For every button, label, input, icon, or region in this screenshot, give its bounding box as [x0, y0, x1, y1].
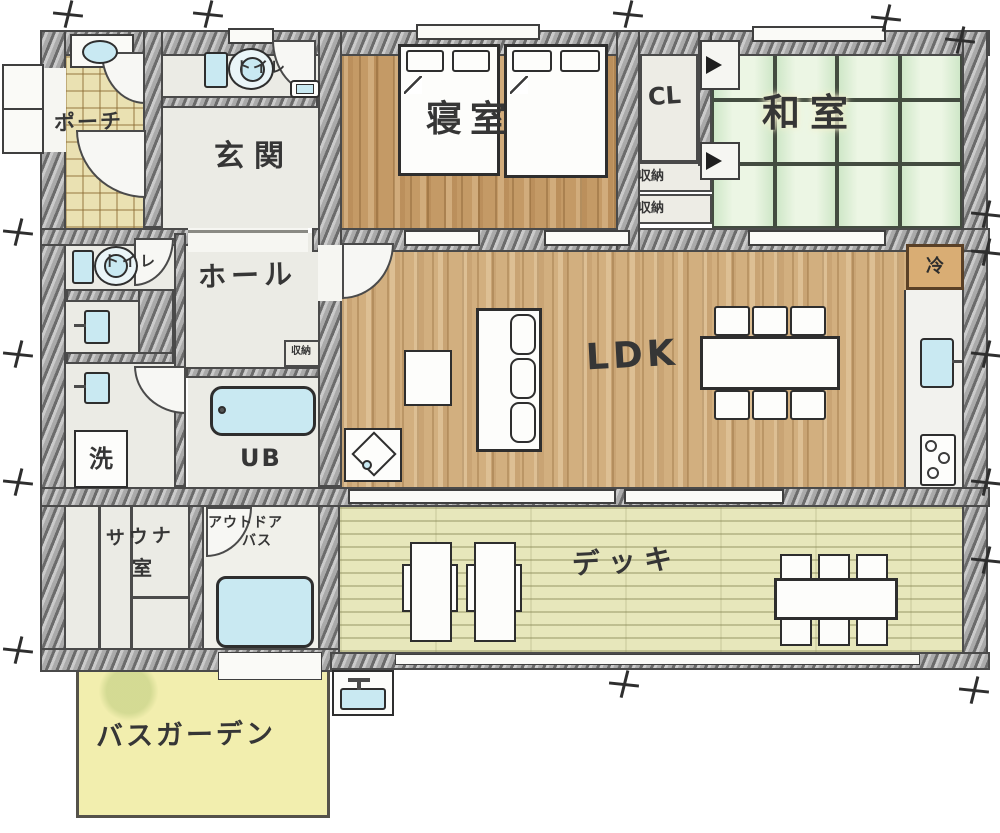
- tick-top-2: [196, 2, 220, 26]
- window-deck-slider-2: [624, 489, 784, 504]
- genkan-step-line: [188, 230, 308, 233]
- deck-chair-4: [780, 618, 812, 646]
- window-ldk-top-1: [404, 230, 480, 246]
- washitsu-slider-arrow-2: [706, 152, 722, 170]
- hall-ldk-opening: [318, 245, 342, 301]
- toilet-upper-handbasin-bowl: [296, 84, 314, 94]
- dining-table: [700, 336, 840, 390]
- stove-burner-2: [938, 452, 950, 464]
- storage-b-label: 収納: [638, 202, 664, 215]
- wall-outdoorbath-right: [318, 505, 340, 650]
- unit-bath-label: UB: [240, 446, 282, 470]
- tick-top-5: [948, 28, 972, 52]
- lounge-chair-2: [474, 542, 516, 642]
- washer-box: 洗: [74, 430, 128, 488]
- washitsu-slider-arrow-1: [706, 56, 722, 74]
- sauna-label-1: サウナ: [106, 526, 176, 549]
- coffee-table: [404, 350, 452, 406]
- tick-right-3: [974, 342, 998, 366]
- deck-chair-1: [780, 554, 812, 580]
- window-washitsu-top: [752, 26, 886, 42]
- deck-chair-5: [818, 618, 850, 646]
- toilet-upper-tank: [204, 52, 228, 88]
- tick-bottom-2: [962, 678, 986, 702]
- outdoor-sink-faucet-v: [357, 678, 361, 690]
- dining-chair-1: [714, 306, 750, 336]
- tick-bottom-1: [612, 672, 636, 696]
- tick-right-4: [974, 470, 998, 494]
- tick-top-4: [874, 6, 898, 30]
- bed-2-pillow-a: [512, 50, 552, 72]
- kitchen-faucet: [952, 360, 964, 363]
- laundry-label: 洗: [89, 447, 113, 471]
- tick-right-5: [974, 548, 998, 572]
- sauna-bench-line-1: [98, 507, 101, 648]
- outdoor-bath-label-1: アウトドア: [208, 516, 283, 530]
- toilet-lower-tank: [72, 250, 94, 284]
- deck-chair-2: [818, 554, 850, 580]
- window-deck-slider-1: [348, 489, 616, 504]
- tick-right-1: [974, 202, 998, 226]
- sauna-label-2: 室: [132, 558, 152, 578]
- tick-top-3: [616, 2, 640, 26]
- unit-bath-faucet: [218, 406, 226, 414]
- wall-sink-1-faucet: [74, 324, 86, 327]
- wall-sauna-divider: [188, 505, 204, 650]
- bed-1-fold: [404, 76, 422, 94]
- bed-2-fold: [510, 76, 528, 94]
- dining-chair-5: [752, 390, 788, 420]
- fridge-label: 冷: [926, 258, 944, 276]
- outdoor-bath-tub: [216, 576, 314, 648]
- corner-unit-dot: [362, 460, 372, 470]
- bath-garden-label: バスガーデン: [96, 720, 276, 750]
- deck-edge-board: [395, 654, 920, 665]
- wall-ub-top: [186, 367, 332, 378]
- wall-sink-2-faucet: [74, 385, 86, 388]
- bed-2-pillow-b: [560, 50, 600, 72]
- wall-hall-left: [174, 233, 186, 487]
- deck-chair-3: [856, 554, 888, 580]
- window-bedroom: [416, 24, 540, 40]
- bedroom-label: 寝室: [426, 102, 514, 138]
- deck-label: デッキ: [571, 545, 680, 579]
- dining-chair-2: [752, 306, 788, 336]
- outdoor-sink-basin: [340, 688, 386, 710]
- wall-sink-2: [84, 372, 110, 404]
- dining-chair-4: [714, 390, 750, 420]
- stove-burner-3: [927, 467, 939, 479]
- deck-table: [774, 578, 898, 620]
- stove-burner-1: [925, 440, 937, 452]
- sauna-bench-line-3: [130, 596, 188, 599]
- storage-a-label: 収納: [638, 170, 664, 183]
- outdoor-bath-label-2: バス: [242, 534, 272, 548]
- floor-plan: 洗 冷: [0, 0, 1000, 833]
- wall-porch-genkan: [143, 30, 163, 228]
- hall-label: ホール: [198, 260, 298, 291]
- sofa-cushion-2: [510, 358, 536, 399]
- tick-right-2: [974, 240, 998, 264]
- window-ldk-top-2: [544, 230, 630, 246]
- sofa-cushion-1: [510, 314, 536, 355]
- toilet-lower-label: トイレ: [104, 254, 158, 269]
- genkan-label: 玄関: [214, 142, 294, 172]
- porch-sink: [82, 40, 118, 64]
- dining-chair-6: [790, 390, 826, 420]
- window-washitsu-deck: [748, 230, 886, 246]
- entrance-step-1: [2, 64, 44, 110]
- tick-left-2: [6, 342, 30, 366]
- cl-label: CL: [647, 83, 682, 109]
- fridge: 冷: [906, 244, 964, 290]
- bed-1-pillow-b: [452, 50, 490, 72]
- tick-left-3: [6, 470, 30, 494]
- porch-label: ポーチ: [54, 111, 124, 134]
- garden-step: [218, 652, 322, 680]
- tick-left-1: [6, 220, 30, 244]
- unit-bath-tub: [210, 386, 316, 436]
- window-toilet1: [228, 28, 274, 44]
- hall-storage-label: 収納: [291, 347, 311, 357]
- washitsu-label: 和室: [762, 94, 858, 132]
- bed-1-pillow-a: [406, 50, 444, 72]
- stove: [920, 434, 956, 486]
- wall-bedroom-right: [616, 30, 640, 252]
- wall-sink-1: [84, 310, 110, 344]
- tick-left-4: [6, 638, 30, 662]
- deck-chair-6: [856, 618, 888, 646]
- ldk-label: LDK: [585, 336, 679, 377]
- sofa-cushion-3: [510, 402, 536, 443]
- wall-washroom-top: [66, 352, 174, 364]
- kitchen-sink: [920, 338, 954, 388]
- tick-top-1: [56, 2, 80, 26]
- dining-chair-3: [790, 306, 826, 336]
- toilet-upper-label: トイレ: [236, 60, 287, 75]
- lounge-chair-1: [410, 542, 452, 642]
- wall-bedroom-left: [318, 30, 342, 252]
- entrance-step-2: [2, 108, 44, 154]
